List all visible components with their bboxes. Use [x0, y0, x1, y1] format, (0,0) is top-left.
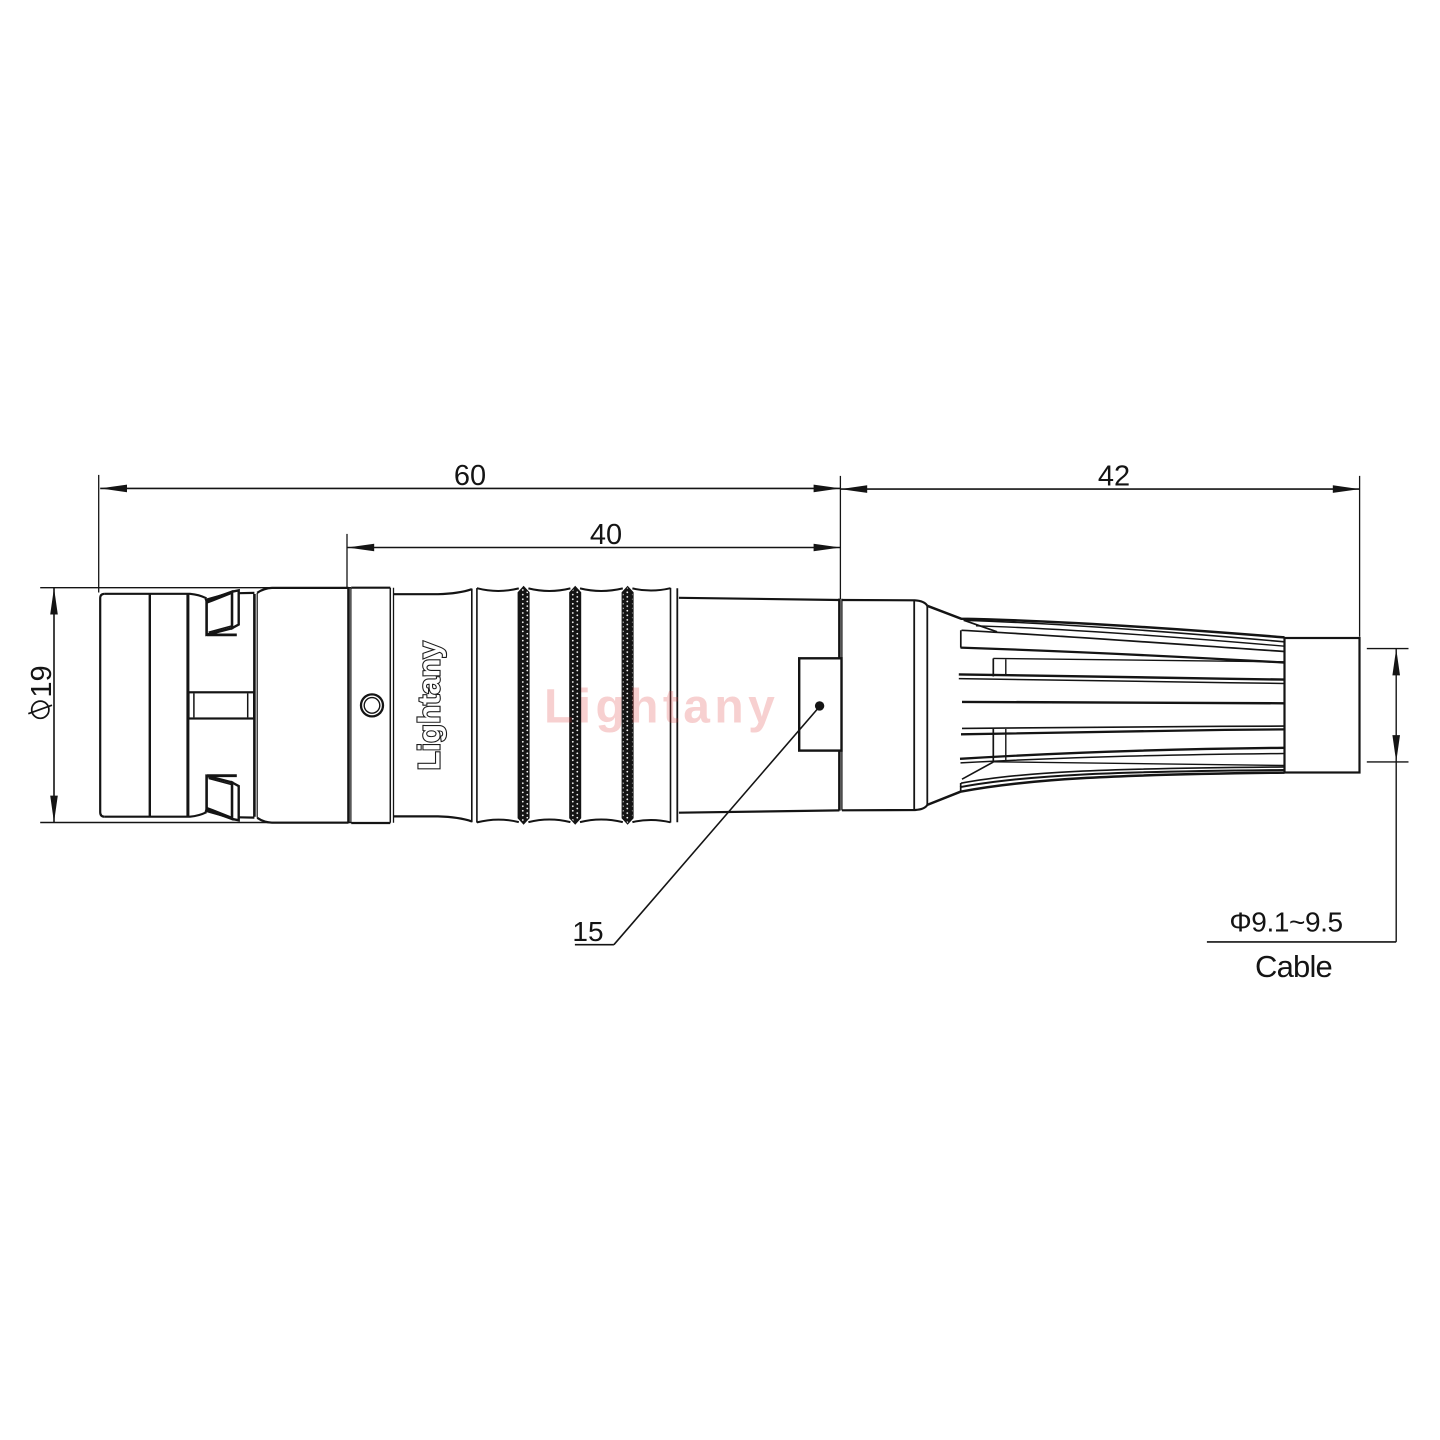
svg-text:Cable: Cable — [1255, 949, 1332, 984]
svg-text:19: 19 — [26, 665, 58, 697]
svg-text:Lightany: Lightany — [544, 681, 779, 734]
svg-text:Φ9.1~9.5: Φ9.1~9.5 — [1229, 907, 1342, 938]
svg-text:60: 60 — [454, 460, 486, 492]
svg-text:Lightany: Lightany — [411, 640, 446, 770]
svg-text:42: 42 — [1098, 460, 1130, 492]
svg-text:40: 40 — [590, 519, 622, 551]
svg-text:15: 15 — [572, 916, 603, 947]
